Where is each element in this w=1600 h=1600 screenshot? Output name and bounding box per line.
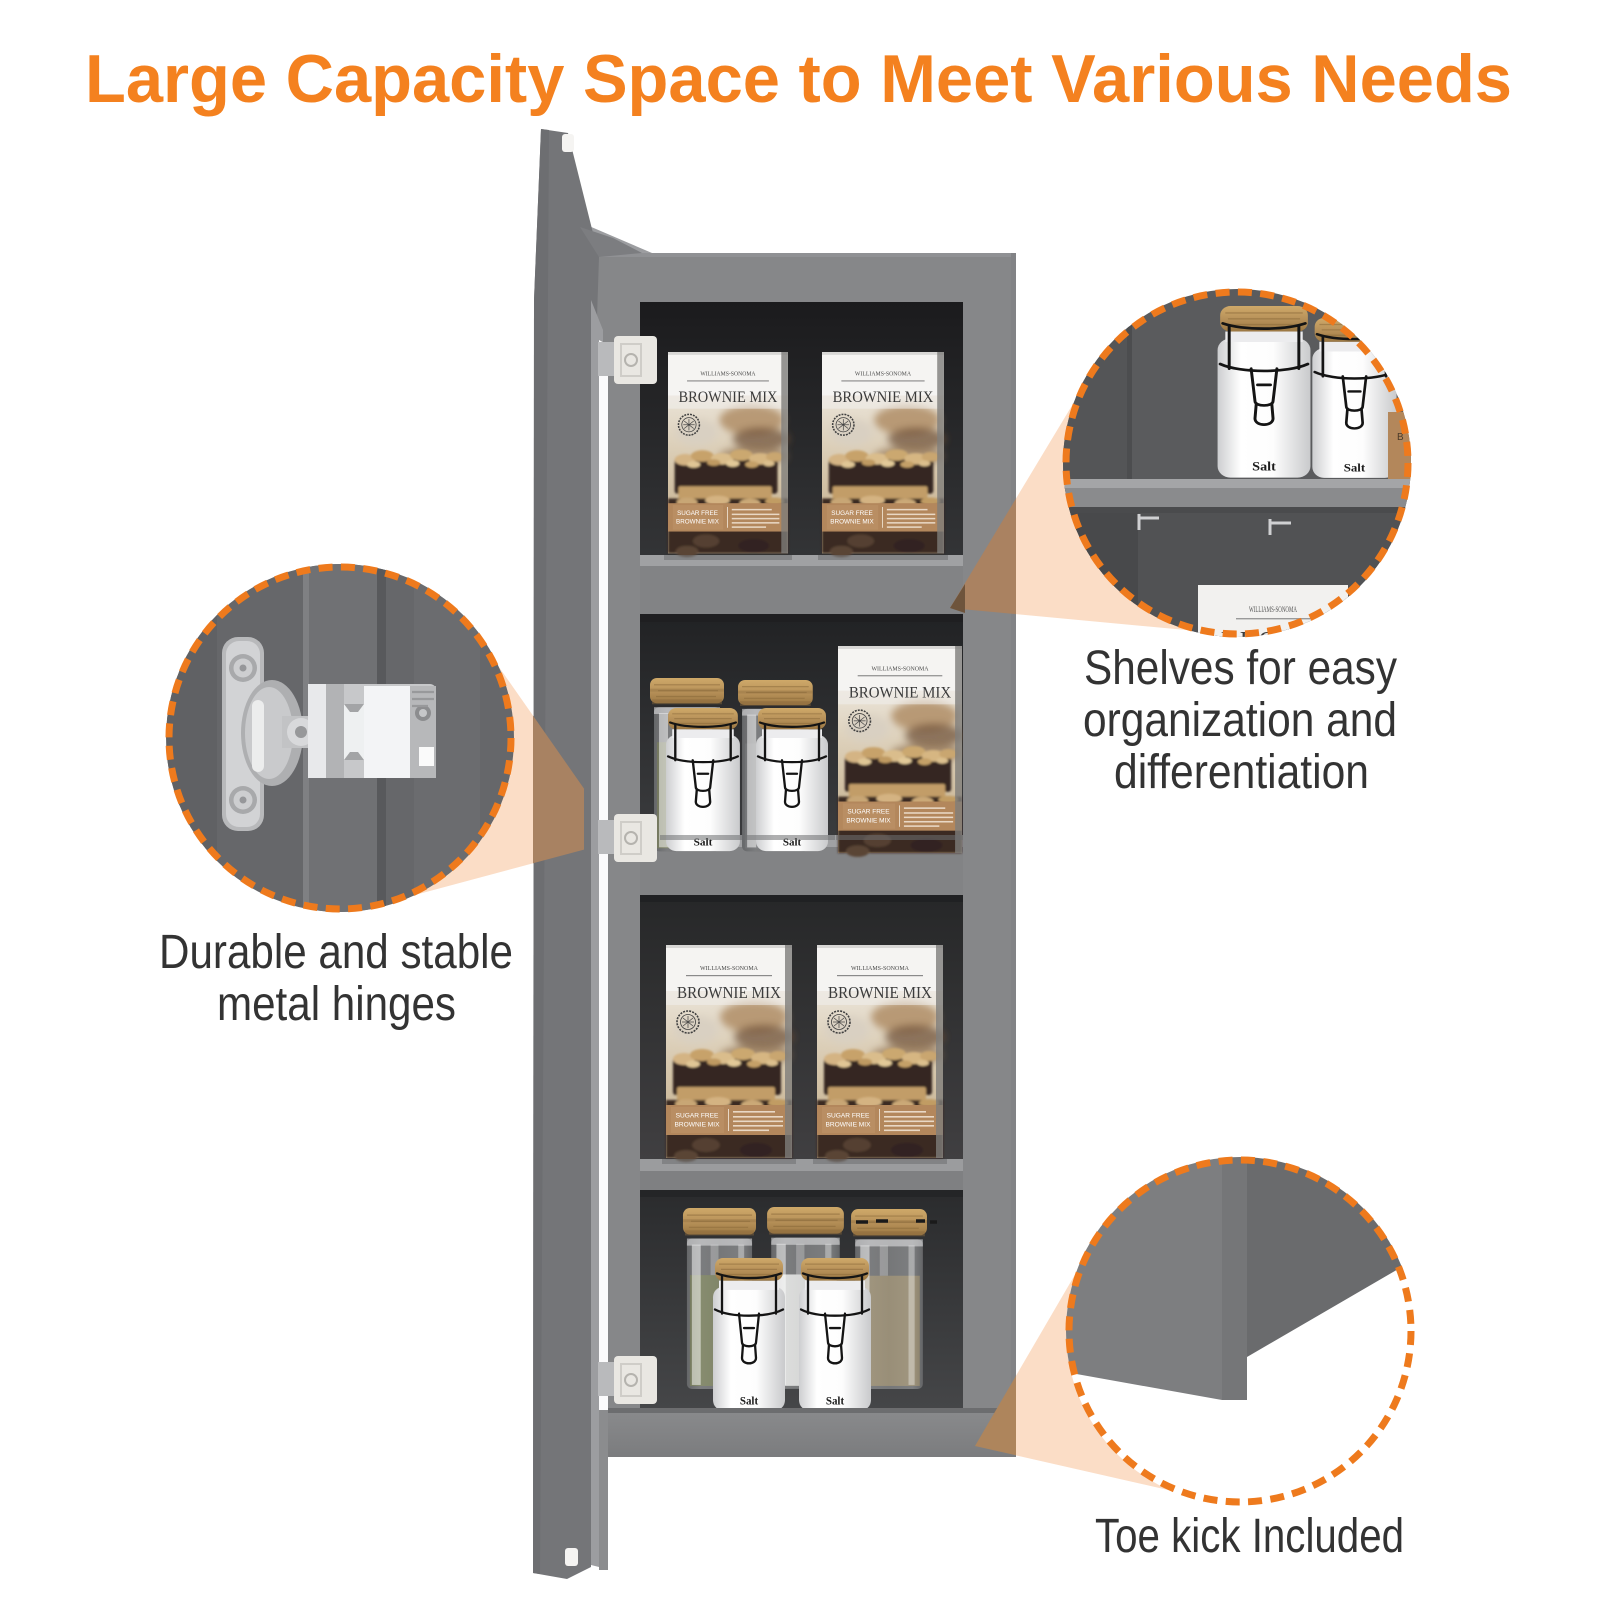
svg-text:metal hinges: metal hinges — [217, 978, 456, 1031]
svg-text:Large Capacity Space to Meet V: Large Capacity Space to Meet Various Nee… — [85, 41, 1512, 117]
svg-text:Durable and stable: Durable and stable — [159, 926, 513, 979]
svg-text:differentiation: differentiation — [1114, 746, 1369, 799]
svg-text:Toe kick Included: Toe kick Included — [1095, 1510, 1404, 1563]
svg-text:WILLIAMS-SONOMA: WILLIAMS-SONOMA — [1249, 605, 1297, 614]
svg-text:organization and: organization and — [1083, 694, 1397, 747]
svg-text:Shelves for easy: Shelves for easy — [1084, 642, 1397, 695]
